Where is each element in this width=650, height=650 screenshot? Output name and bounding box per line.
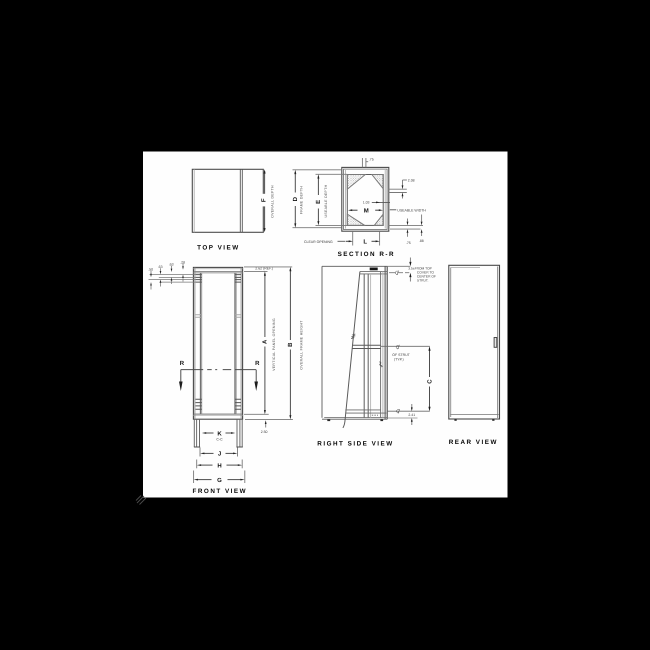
svg-text:USEABLE DEPTH: USEABLE DEPTH: [324, 184, 328, 217]
svg-text:1.03: 1.03: [363, 200, 370, 204]
svg-text:.50: .50: [148, 268, 153, 272]
svg-text:C-C: C-C: [216, 437, 223, 441]
svg-text:K: K: [217, 430, 222, 437]
svg-text:FRONT VIEW: FRONT VIEW: [193, 488, 248, 495]
svg-text:OVERALL FRAME HEIGHT: OVERALL FRAME HEIGHT: [299, 320, 303, 370]
svg-text:2.41: 2.41: [408, 413, 415, 417]
svg-text:OF STRUT: OF STRUT: [392, 353, 410, 357]
svg-text:J: J: [218, 451, 221, 458]
svg-text:E: E: [315, 200, 322, 204]
svg-text:A: A: [262, 339, 269, 344]
svg-text:2.50: 2.50: [261, 430, 268, 434]
svg-text:R: R: [255, 360, 260, 367]
svg-text:.75: .75: [406, 241, 411, 245]
svg-text:REAR VIEW: REAR VIEW: [449, 439, 498, 446]
svg-text:.88: .88: [419, 239, 424, 243]
svg-text:OVERALL DEPTH: OVERALL DEPTH: [270, 185, 274, 218]
svg-text:.28: .28: [180, 260, 185, 264]
svg-text:STRUT.: STRUT.: [417, 278, 429, 282]
svg-text:CLEAR OPENING: CLEAR OPENING: [304, 240, 333, 244]
svg-text:C: C: [426, 379, 433, 384]
svg-text:USEABLE WIDTH: USEABLE WIDTH: [397, 208, 426, 212]
svg-text:.63: .63: [158, 265, 163, 269]
svg-text:TOP VIEW: TOP VIEW: [197, 244, 240, 251]
svg-text:(TYP.): (TYP.): [394, 358, 404, 362]
svg-text:F: F: [261, 198, 268, 202]
svg-text:FRAME DEPTH: FRAME DEPTH: [299, 186, 303, 215]
svg-text:G: G: [217, 477, 222, 484]
svg-text:D: D: [292, 196, 299, 201]
svg-text:L: L: [363, 239, 367, 246]
svg-text:RIGHT SIDE VIEW: RIGHT SIDE VIEW: [317, 441, 393, 448]
svg-text:VERTICAL PANEL OPENING: VERTICAL PANEL OPENING: [272, 318, 276, 371]
svg-text:H: H: [217, 462, 221, 469]
svg-text:2.08: 2.08: [408, 178, 415, 182]
svg-text:B: B: [287, 342, 294, 347]
svg-text:R: R: [180, 360, 185, 367]
svg-text:.63: .63: [169, 263, 174, 267]
svg-text:SECTION R-R: SECTION R-R: [338, 251, 395, 258]
svg-text:M: M: [364, 208, 369, 215]
svg-text:.75: .75: [369, 158, 374, 162]
